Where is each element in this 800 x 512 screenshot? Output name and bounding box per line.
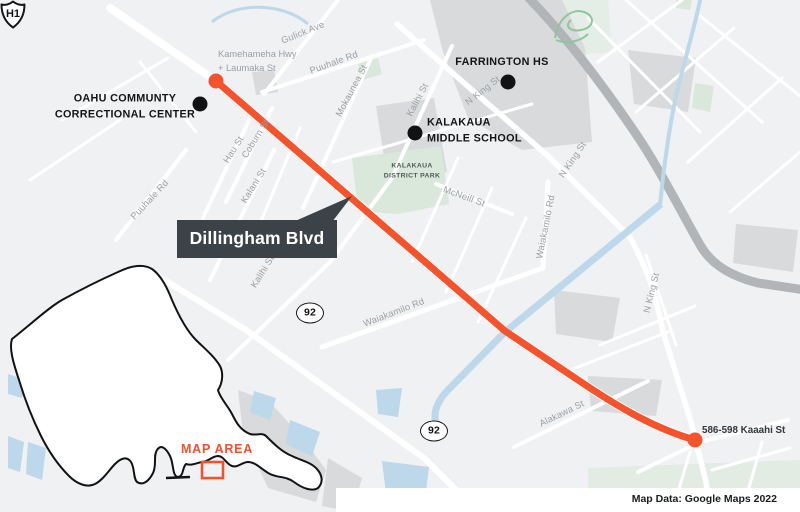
inset-pier-line [166, 477, 190, 478]
route-callout: Dillingham Blvd [177, 220, 337, 258]
poi-dot-farrington [501, 75, 516, 90]
map-graphic: Gulick Ave Puuhale Rd Mokaunea St Kalihi… [0, 0, 800, 512]
poi-label-occc: OAHU COMMUNTY CORRECTIONAL CENTER [55, 91, 195, 122]
poi-dot-occc [193, 97, 208, 112]
poi-label-farrington-hs: FARRINGTON HS [455, 55, 548, 71]
kms-line1: KALAKAUA [427, 115, 522, 131]
poi-label-kalakaua-district-park: KALAKAUA DISTRICT PARK [384, 161, 440, 180]
h1-shield-label: H1 [6, 8, 20, 20]
park-line1: KALAKAUA [384, 161, 440, 171]
kms-line2: MIDDLE SCHOOL [427, 131, 522, 147]
base-map-canvas [0, 0, 800, 512]
park-line2: DISTRICT PARK [384, 171, 440, 181]
street-label-kamehameha-laumaka: Kamehameha Hwy + Laumaka St [218, 48, 297, 76]
occc-line2: CORRECTIONAL CENTER [55, 107, 195, 123]
h1-interstate-shield: H1 [0, 0, 26, 29]
map-attribution: Map Data: Google Maps 2022 [632, 494, 777, 505]
route-92-shield-upper: 92 [296, 303, 324, 324]
poi-label-kalakaua-middle-school: KALAKAUA MIDDLE SCHOOL [427, 115, 522, 146]
route-end-dot [688, 433, 703, 448]
laumaka-st-line: + Laumaka St [218, 62, 297, 76]
route-callout-label: Dillingham Blvd [190, 230, 325, 248]
route-92-shield-lower: 92 [420, 421, 448, 442]
occc-line1: OAHU COMMUNTY [55, 91, 195, 107]
kamehameha-hwy-line: Kamehameha Hwy [218, 48, 297, 62]
route-endpoint-address-label: 586-598 Kaaahi St [702, 426, 785, 436]
poi-dot-kalakaua-ms [408, 126, 423, 141]
map-area-label: MAP AREA [181, 443, 253, 456]
